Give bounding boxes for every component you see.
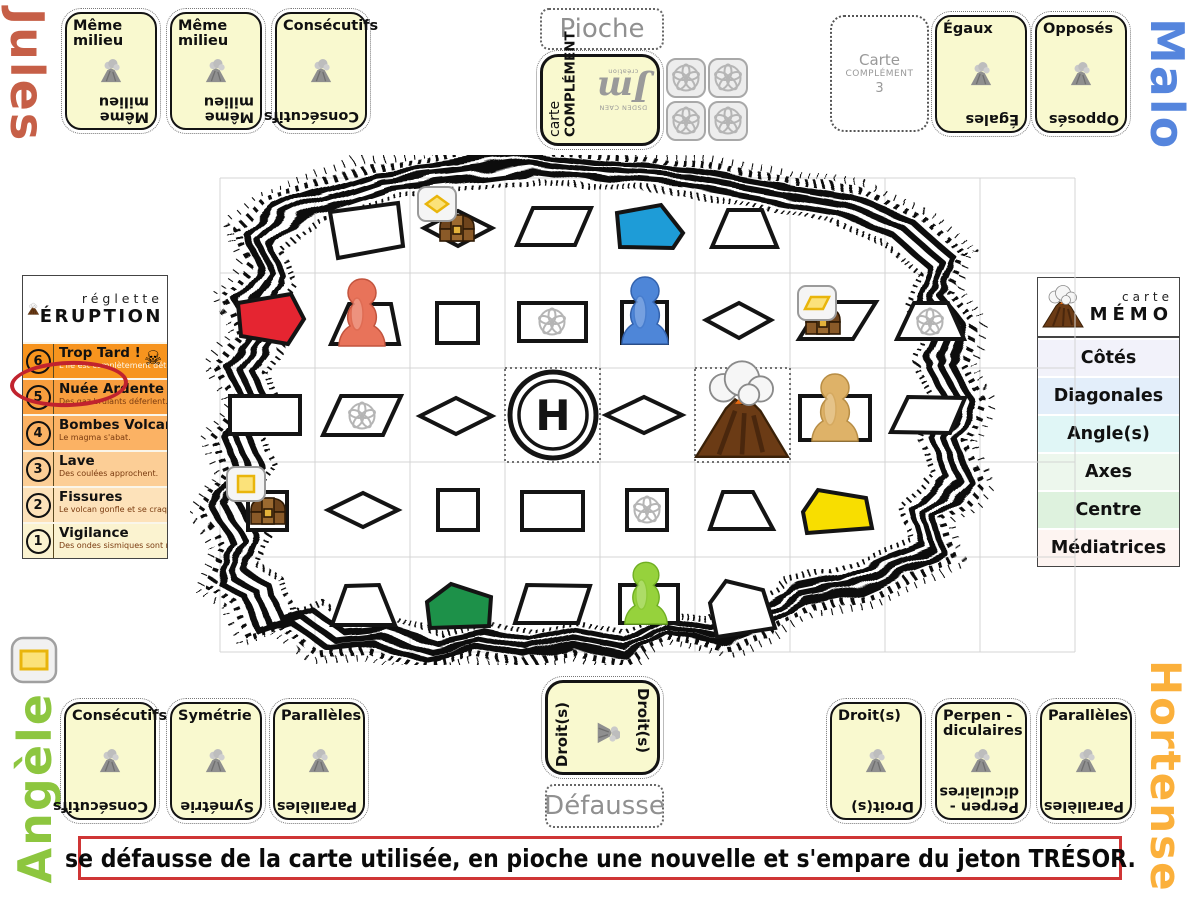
skull-icon: ☠ <box>144 348 162 368</box>
shape-quadrilateral-red <box>238 294 304 344</box>
shape-square <box>437 303 478 343</box>
volcano-icon <box>27 283 40 335</box>
mini-volcano-icon <box>204 748 228 774</box>
card-label-mirrored: Même milieu <box>178 93 254 123</box>
mini-volcano-icon <box>864 748 888 774</box>
eruption-level-3: 3 LaveDes coulées approchent. <box>23 450 167 486</box>
mini-volcano-icon <box>969 61 993 87</box>
discard-pile-card[interactable]: Droit(s) Droit(s) <box>545 680 660 775</box>
card-label: Symétrie <box>178 709 254 724</box>
card-malo-2[interactable]: Opposés Opposés <box>1035 15 1127 133</box>
draw-card-title: carte COMPLÉMENT <box>548 63 579 137</box>
objective-token-rectangle[interactable] <box>10 636 58 684</box>
objective-token-parallelogram[interactable] <box>798 286 836 320</box>
complement-card-slot[interactable]: Carte COMPLÉMENT 3 <box>830 15 929 132</box>
shape-rhombus <box>706 303 771 338</box>
mini-volcano-icon <box>1074 748 1098 774</box>
card-angele-2[interactable]: Symétrie Symétrie <box>170 702 262 820</box>
mini-volcano-icon <box>594 718 620 744</box>
card-label: Égaux <box>943 22 1019 37</box>
eruption-level-2: 2 FissuresLe volcan gonfle et se craquel… <box>23 486 167 522</box>
shape-quadrilateral-blue <box>617 205 683 248</box>
shape-parallelogram <box>515 585 590 623</box>
publisher-logo: DSDEN CAEN Jm création <box>597 67 649 109</box>
svg-text:H: H <box>535 391 570 440</box>
eruption-level-4: 4 Bombes VolcaniquesLe magma s'abat. <box>23 414 167 450</box>
shape-trapezoid <box>710 492 773 529</box>
game-table: Jules Même milieu Même milieu Même milie… <box>0 0 1200 900</box>
shape-rhombus <box>420 398 492 434</box>
mini-volcano-icon <box>307 748 331 774</box>
objective-token-diamond[interactable] <box>418 187 456 221</box>
shape-quadrilateral-green <box>427 584 491 628</box>
card-label: Parallèles <box>281 709 357 724</box>
card-label: Opposés <box>1043 22 1119 37</box>
card-label: Droit(s) <box>838 709 914 724</box>
card-label-mirrored: Perpen -diculaires <box>943 783 1019 813</box>
instruction-banner: se défausse de la carte utilisée, en pio… <box>78 836 1122 880</box>
card-jules-3[interactable]: Consécutifs Consécutifs <box>275 12 367 130</box>
shape-quadrilateral <box>710 581 775 637</box>
ruler-title-big: ÉRUPTION <box>40 306 163 327</box>
mini-volcano-icon <box>969 748 993 774</box>
player-name-hortense: Hortense <box>1144 660 1186 893</box>
mini-volcano-icon <box>98 748 122 774</box>
card-hortense-3[interactable]: Parallèles Parallèles <box>1040 702 1132 820</box>
card-angele-1[interactable]: Consécutifs Consécutifs <box>64 702 156 820</box>
card-label-mirrored: Égales <box>943 111 1019 126</box>
card-jules-2[interactable]: Même milieu Même milieu <box>170 12 262 130</box>
eruption-ruler: réglette ÉRUPTION 6 Trop Tard !L'île est… <box>22 275 168 559</box>
shape-quadrilateral <box>330 203 403 258</box>
player-name-malo: Malo <box>1144 18 1190 150</box>
memo-title-big: MÉMO <box>1090 304 1173 325</box>
shape-trapezoid <box>712 210 777 247</box>
card-hortense-1[interactable]: Droit(s) Droit(s) <box>830 702 922 820</box>
objective-token-square[interactable] <box>227 467 265 501</box>
card-label-mirrored: Opposés <box>1043 111 1119 126</box>
card-label-mirrored: Parallèles <box>1048 798 1124 813</box>
shape-rectangle <box>522 492 583 530</box>
mini-volcano-icon <box>204 58 228 84</box>
draw-pile-card[interactable]: carte COMPLÉMENT DSDEN CAEN Jm création <box>540 54 660 146</box>
card-label: Même milieu <box>178 19 254 49</box>
card-label: Même milieu <box>73 19 149 49</box>
memo-title-small: carte <box>1090 290 1173 304</box>
draw-pile-label: Pioche <box>540 8 664 50</box>
ruler-title-small: réglette <box>40 291 163 306</box>
card-label-mirrored: Parallèles <box>281 798 357 813</box>
shape-parallelogram <box>517 208 591 245</box>
card-label-mirrored: Consécutifs <box>283 108 359 123</box>
discard-card-label: Droit(s) <box>634 688 652 753</box>
card-hortense-2[interactable]: Perpen -diculaires Perpen -diculaires <box>935 702 1027 820</box>
eruption-level-1: 1 VigilanceDes ondes sismiques sont ress… <box>23 522 167 558</box>
card-label: Parallèles <box>1048 709 1124 724</box>
card-label-mirrored: Même milieu <box>73 93 149 123</box>
shape-trapezoid <box>332 585 395 625</box>
mini-volcano-icon <box>99 58 123 84</box>
shape-parallelogram <box>891 397 965 433</box>
discard-card-label-mirrored: Droit(s) <box>553 702 571 767</box>
mini-volcano-icon <box>309 58 333 84</box>
card-angele-3[interactable]: Parallèles Parallèles <box>273 702 365 820</box>
shape-rhombus <box>328 493 398 527</box>
shape-rectangle <box>230 396 300 434</box>
card-label: Perpen -diculaires <box>943 709 1019 739</box>
draw-token-stack[interactable] <box>664 56 750 144</box>
mini-volcano-icon <box>1069 61 1093 87</box>
discard-pile-label: Défausse <box>545 784 664 828</box>
player-name-jules: Jules <box>4 8 50 142</box>
card-malo-1[interactable]: Égaux Égales <box>935 15 1027 133</box>
helipad: H <box>510 372 596 458</box>
card-label: Consécutifs <box>283 19 359 34</box>
card-label-mirrored: Symétrie <box>178 798 254 813</box>
eruption-level-5: 5 Nuée ArdenteDes gaz brûlants déferlent… <box>23 378 167 414</box>
shape-rhombus <box>606 397 682 433</box>
eruption-level-6: 6 Trop Tard !L'île est complètement détr… <box>23 342 167 378</box>
card-label: Consécutifs <box>72 709 148 724</box>
card-label-mirrored: Consécutifs <box>72 798 148 813</box>
island-board: H <box>190 155 1090 665</box>
card-label-mirrored: Droit(s) <box>838 798 914 813</box>
shape-square <box>438 490 478 530</box>
shape-quadrilateral-yellow <box>803 490 872 533</box>
player-name-angele: Angèle <box>12 692 58 883</box>
card-jules-1[interactable]: Même milieu Même milieu <box>65 12 157 130</box>
